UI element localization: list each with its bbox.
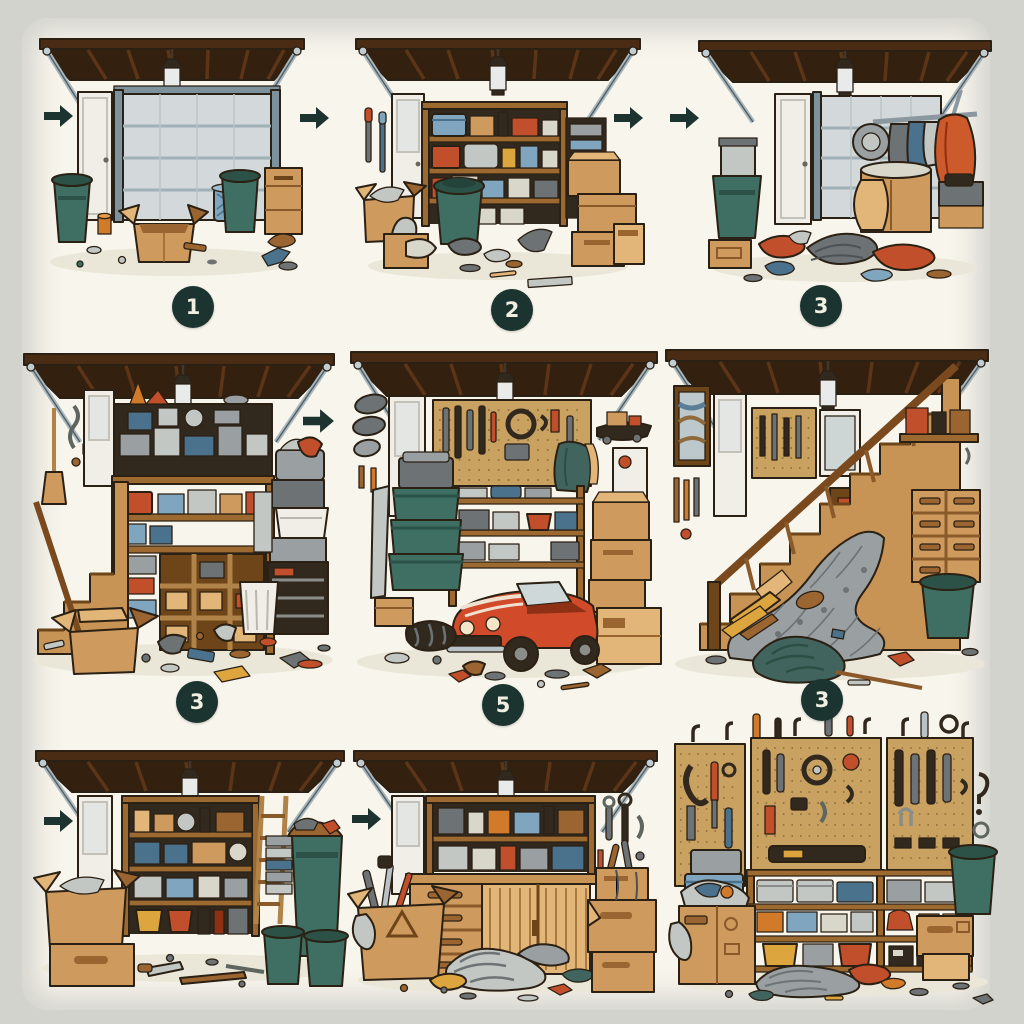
tan-cabinet bbox=[265, 168, 302, 234]
drawer-cabinet bbox=[912, 490, 980, 582]
side-door bbox=[775, 94, 811, 224]
arrow-right-icon bbox=[303, 408, 333, 432]
side-door bbox=[714, 394, 746, 516]
arrow-right-icon bbox=[614, 106, 644, 130]
panel-cluttered-garage-with-stairs bbox=[18, 342, 340, 687]
panel-garage-workbench-and-boxes bbox=[348, 740, 663, 1002]
small-box-floor bbox=[375, 598, 413, 626]
wall-plaques-left bbox=[352, 392, 389, 492]
trash-can-left bbox=[713, 138, 761, 238]
upper-shelves bbox=[426, 796, 595, 876]
green-round-bin bbox=[434, 178, 484, 244]
panel-garage-with-red-car bbox=[345, 340, 663, 690]
tan-cabinet bbox=[854, 162, 931, 232]
back-window bbox=[820, 410, 860, 476]
panel-mostly-empty-garage bbox=[36, 28, 308, 286]
step-badge: 3 bbox=[800, 285, 842, 327]
panel-garage-sorted-shelves-and-trash bbox=[30, 740, 350, 990]
shelving-unit bbox=[122, 796, 259, 936]
wall-tools-left bbox=[674, 478, 699, 539]
step-badge: 3 bbox=[801, 679, 843, 721]
cardboard-boxes-left bbox=[34, 870, 140, 986]
panel-pegboard-wall-organization bbox=[665, 710, 995, 1005]
step-badge: 5 bbox=[482, 684, 524, 726]
question-hook bbox=[974, 774, 988, 837]
step-badge: 1 bbox=[172, 286, 214, 328]
cardboard-box bbox=[709, 240, 751, 268]
hanging-jacket bbox=[554, 442, 598, 492]
orange-cup bbox=[98, 213, 111, 234]
green-trash-can bbox=[920, 574, 976, 638]
green-tote-stack bbox=[371, 452, 463, 598]
side-door bbox=[84, 390, 114, 486]
pegboard-center bbox=[751, 738, 881, 870]
framed-picture bbox=[674, 386, 710, 466]
arrow-right-icon bbox=[44, 104, 74, 128]
step-badge: 3 bbox=[176, 681, 218, 723]
cardboard-boxes-right bbox=[589, 492, 661, 664]
arrow-right-icon bbox=[44, 809, 74, 833]
trash-can-left bbox=[52, 174, 92, 242]
pegboard-back bbox=[752, 408, 816, 478]
stacked-boxes-right bbox=[566, 118, 644, 266]
panel-garage-with-stocked-shelves bbox=[352, 28, 644, 290]
panel-garage-with-clothes-piles bbox=[695, 30, 995, 292]
wall-tools-left bbox=[365, 108, 386, 172]
green-trash-can bbox=[949, 845, 997, 914]
overflowing-box-left bbox=[669, 880, 755, 984]
panel-garage-under-stairs-avalanche bbox=[660, 338, 995, 690]
wooden-crate bbox=[917, 916, 973, 980]
gray-tray-stacks bbox=[266, 836, 292, 894]
wall-shelf-right bbox=[939, 174, 983, 228]
illustration-stage: 1 2 3 3 5 3 bbox=[0, 0, 1024, 1024]
white-trash-bin bbox=[240, 582, 278, 634]
arrow-right-icon bbox=[670, 106, 700, 130]
staircase bbox=[36, 482, 128, 654]
arrow-right-icon bbox=[300, 106, 330, 130]
step-badge: 2 bbox=[491, 289, 533, 331]
wall-tools-right bbox=[598, 794, 644, 874]
trash-can-right bbox=[220, 170, 260, 232]
arrow-right-icon bbox=[352, 807, 382, 831]
